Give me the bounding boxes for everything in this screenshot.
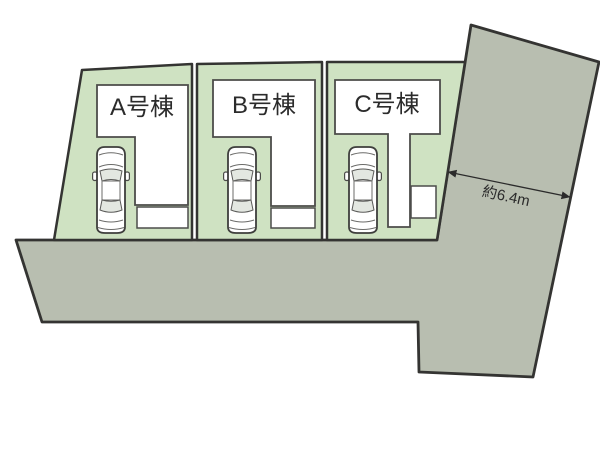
car-b-icon bbox=[224, 147, 261, 233]
porch-b bbox=[271, 208, 315, 228]
lot-b-label: B号棟 bbox=[232, 92, 296, 119]
site-plan-page: A号棟 B号棟 C号棟 約6.4m bbox=[0, 0, 600, 450]
lot-c-label: C号棟 bbox=[354, 91, 419, 118]
site-plan-drawing: A号棟 B号棟 C号棟 約6.4m bbox=[0, 0, 600, 450]
porch-a bbox=[137, 207, 188, 228]
porch-c bbox=[411, 186, 436, 218]
lot-a-label: A号棟 bbox=[110, 94, 174, 121]
car-a-icon bbox=[93, 147, 130, 233]
car-c-icon bbox=[345, 147, 382, 233]
